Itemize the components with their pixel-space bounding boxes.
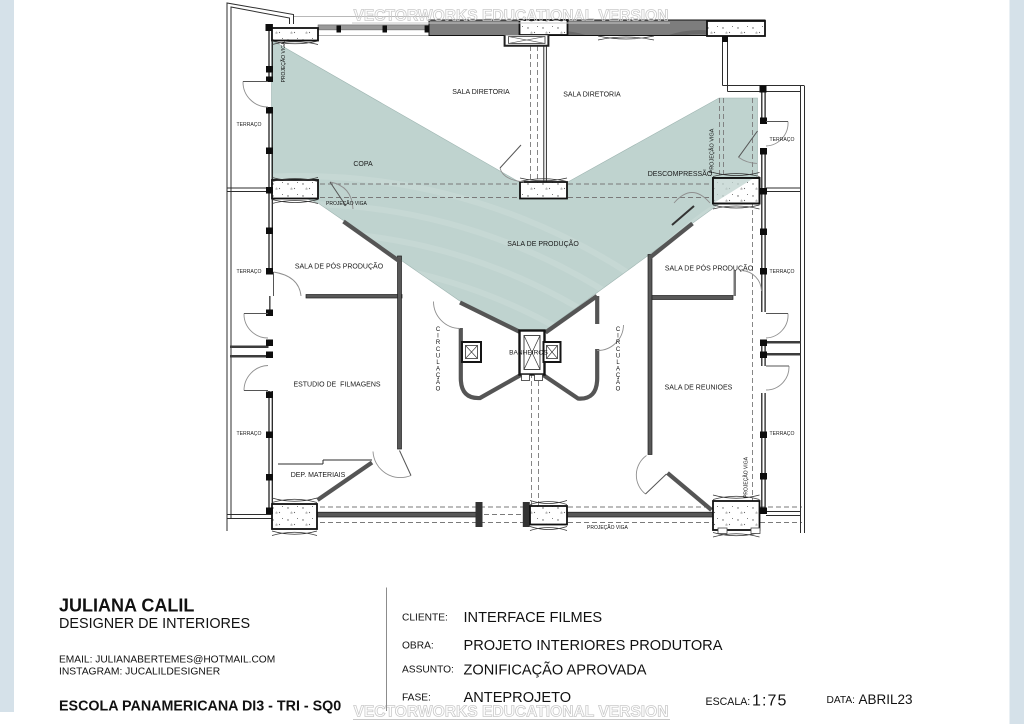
svg-text:BANHEIROS: BANHEIROS [509,350,548,357]
svg-text:EMAIL: JULIANABERTEMES@HOTMAIL: EMAIL: JULIANABERTEMES@HOTMAIL.COM [59,655,275,666]
svg-text:SALA DE PÓS PRODUÇÃO: SALA DE PÓS PRODUÇÃO [665,264,754,273]
svg-text:DESCOMPRESSÃO: DESCOMPRESSÃO [648,169,713,178]
svg-text:ESCOLA PANAMERICANA DI3 - TRI: ESCOLA PANAMERICANA DI3 - TRI - SQ0 [59,699,341,715]
svg-text:FASE:: FASE: [402,693,431,704]
svg-text:INSTAGRAM: JUCALILDESIGNER: INSTAGRAM: JUCALILDESIGNER [59,667,220,678]
svg-text:TERRAÇO: TERRAÇO [770,137,795,143]
svg-text:PROJEÇÃO VIGA: PROJEÇÃO VIGA [326,200,368,207]
svg-text:SALA DE PÓS PRODUÇÃO: SALA DE PÓS PRODUÇÃO [295,262,384,271]
svg-text:DEP. MATERIAIS: DEP. MATERIAIS [291,472,346,479]
svg-text:VECTORWORKS EDUCATIONAL VERSIO: VECTORWORKS EDUCATIONAL VERSION [353,8,668,25]
svg-text:TERRAÇO: TERRAÇO [770,431,795,437]
svg-text:TERRAÇO: TERRAÇO [237,122,262,128]
svg-text:CLIENTE:: CLIENTE: [402,613,448,624]
svg-text:PROJEÇÃO VIGA: PROJEÇÃO VIGA [709,128,716,173]
svg-text:SALA DIRETORIA: SALA DIRETORIA [563,92,621,99]
svg-text:DATA:: DATA: [827,695,856,706]
svg-text:ESTUDIO DE FILMAGENS: ESTUDIO DE FILMAGENS [293,382,380,389]
svg-text:TERRAÇO: TERRAÇO [237,431,262,437]
svg-text:TERRAÇO: TERRAÇO [770,269,795,275]
svg-text:TERRAÇO: TERRAÇO [237,269,262,275]
svg-text:ASSUNTO:: ASSUNTO: [402,665,454,676]
svg-text:SALA DE PRODUÇÃO: SALA DE PRODUÇÃO [507,239,579,248]
svg-text:ZONIFICAÇÃO APROVADA: ZONIFICAÇÃO APROVADA [464,662,647,679]
svg-text:PROJETO INTERIORES PRODUTORA: PROJETO INTERIORES PRODUTORA [464,638,723,654]
svg-text:SALA DE REUNIOES: SALA DE REUNIOES [665,385,733,392]
svg-text:INTERFACE FILMES: INTERFACE FILMES [464,610,603,626]
svg-text:COPA: COPA [353,161,373,168]
svg-text:ESCALA:: ESCALA: [706,696,751,708]
svg-text:PROJEÇÃO VIGA: PROJEÇÃO VIGA [280,41,287,83]
svg-text:JULIANA CALIL: JULIANA CALIL [59,596,194,616]
svg-text:OBRA:: OBRA: [402,641,434,652]
svg-text:ABRIL23: ABRIL23 [859,692,913,707]
svg-text:PROJEÇÃO VIGA: PROJEÇÃO VIGA [587,524,629,531]
svg-text:ANTEPROJETO: ANTEPROJETO [464,690,572,706]
svg-text:DESIGNER DE INTERIORES: DESIGNER DE INTERIORES [59,616,250,632]
svg-text:PROJEÇÃO VIGA: PROJEÇÃO VIGA [743,456,750,498]
svg-text:1:75: 1:75 [752,693,788,710]
svg-text:VECTORWORKS EDUCATIONAL VERSIO: VECTORWORKS EDUCATIONAL VERSION [353,704,668,721]
svg-text:SALA DIRETORIA: SALA DIRETORIA [452,89,510,96]
